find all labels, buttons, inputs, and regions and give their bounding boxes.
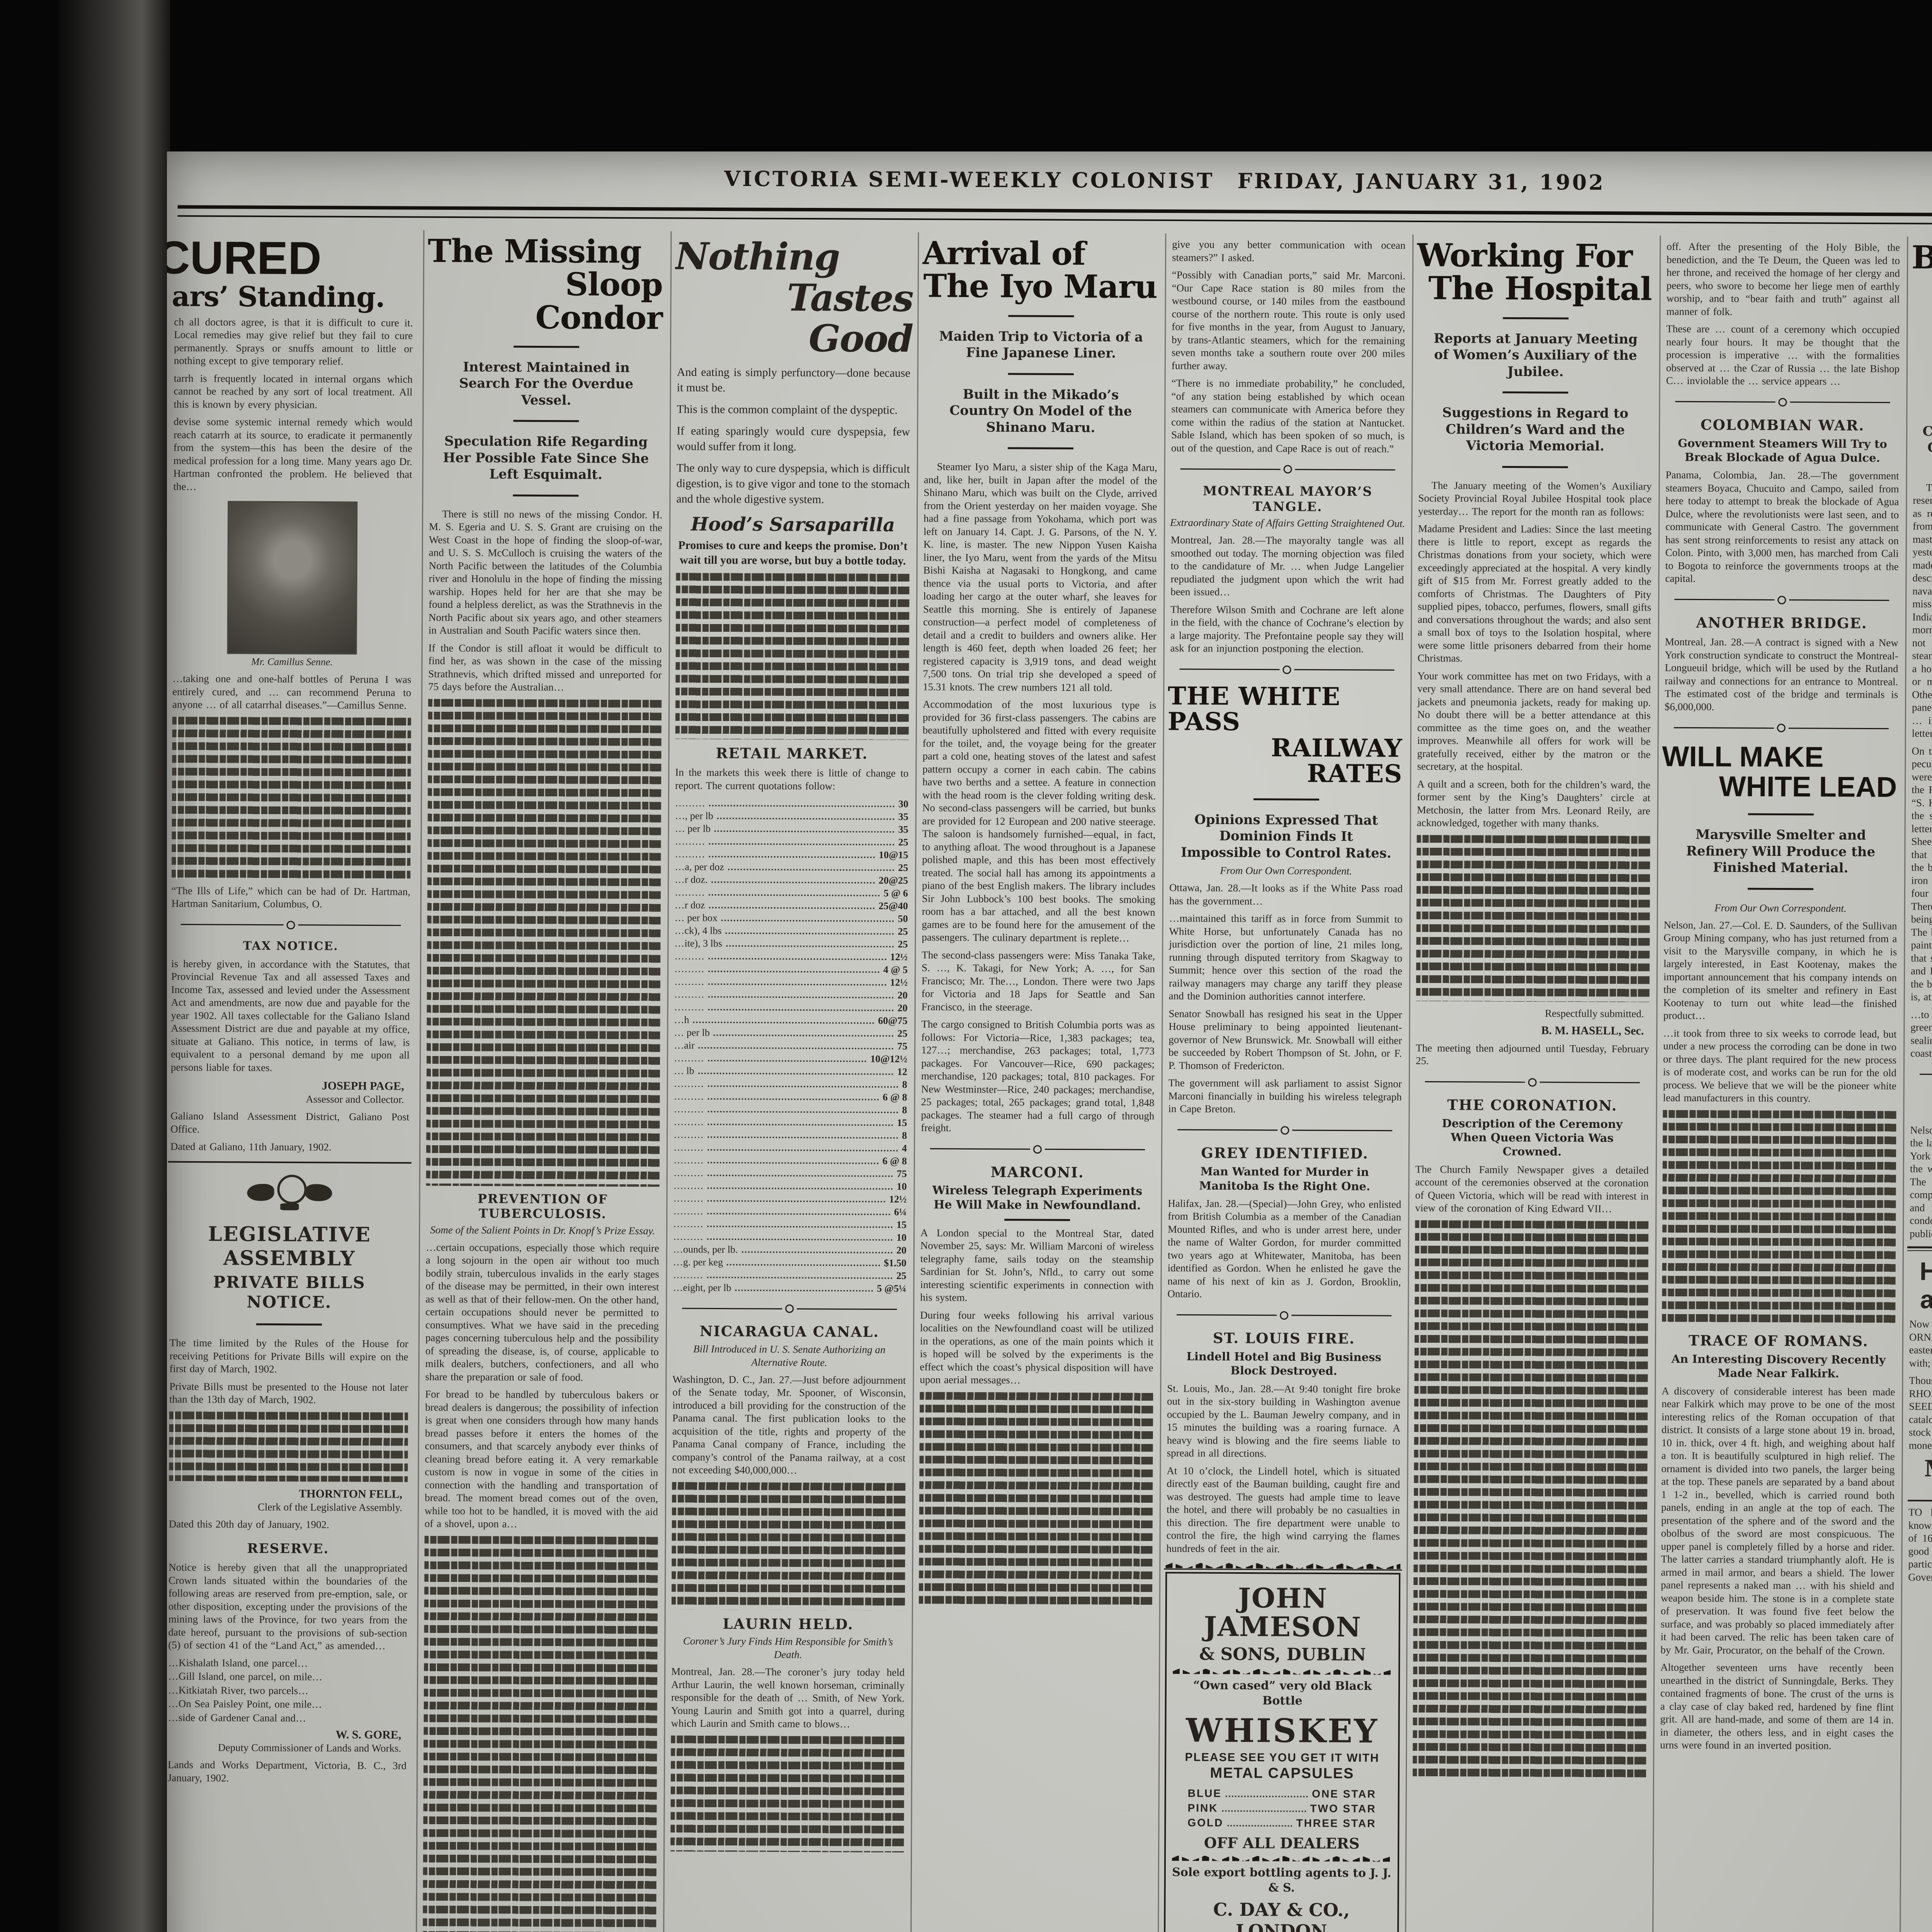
section-divider (1177, 1311, 1391, 1320)
market-price-row: … lb12 (674, 1065, 907, 1078)
article-paragraph: Ottawa, Jan. 28.—It looks as if the Whit… (1169, 881, 1403, 908)
portrait-photo (227, 501, 358, 655)
colombian-war-heading: COLOMBIAN WAR. (1663, 416, 1901, 434)
article-paragraph: “Possibly with Canadian ports,” said Mr.… (1172, 269, 1405, 373)
grey-subhead: Man Wanted for Murder in Manitoba Is the… (1177, 1164, 1392, 1193)
article-paragraph: Your work committee has met on two Frida… (1417, 669, 1651, 774)
notice-fragment: …On Sea Paisley Point, one mile… (168, 1697, 407, 1711)
grey-heading: GREY IDENTIFIED. (1166, 1144, 1404, 1162)
market-price-row: ………8 (673, 1128, 907, 1142)
market-price-row: ………25 (673, 1269, 906, 1282)
article-paragraph: “There is no immediate probability,” he … (1171, 377, 1405, 456)
notice-paragraph: is hereby given, in accordance with the … (171, 957, 410, 1075)
newspaper-page: VICTORIA SEMI-WEEKLY COLONISTFRIDAY, JAN… (167, 151, 1932, 1932)
market-price-row: … per box50 (675, 912, 908, 925)
notice-signature-role: Assessor and Collector. (168, 1092, 404, 1106)
jameson-star-row: PINKTWO STAR (1188, 1801, 1376, 1816)
body-text-texture (1413, 1220, 1648, 1782)
market-price-row: …ounds, per lb.20 (673, 1243, 906, 1257)
article-paragraph: give you any better communication with o… (1172, 238, 1405, 265)
article-paragraph: Halifax, Jan. 28.—(Special)—John Grey, w… (1167, 1197, 1401, 1302)
newspaper-scan: VICTORIA SEMI-WEEKLY COLONISTFRIDAY, JAN… (0, 0, 1932, 1932)
jameson-star-row: GOLDTHREE STAR (1187, 1815, 1376, 1831)
article-paragraph: On the stem was the broad arrow which is… (1911, 745, 1932, 1005)
column-4: Arrival ofThe Iyo Maru Maiden Trip to Vi… (912, 237, 1160, 1932)
section-divider (1177, 1126, 1392, 1135)
section-divider (682, 1304, 897, 1313)
body-text-texture (1416, 835, 1650, 1002)
montreal-tangle-subhead: Extraordinary State of Affairs Getting S… (1168, 516, 1406, 530)
article-paragraph: off. After the presenting of the Holy Bi… (1666, 240, 1900, 319)
masthead-rule-2 (178, 215, 1932, 225)
divider-rule (513, 494, 578, 497)
column-7: off. After the presenting of the Holy Bi… (1654, 240, 1902, 1932)
boat-condor-headline: Boat FromThe Condor (1912, 241, 1932, 308)
another-bridge-heading: ANOTHER BRIDGE. (1663, 614, 1901, 632)
marconi-heading: MARCONI. (918, 1163, 1156, 1181)
notice-paragraph: The time limited by the Rules of the Hou… (169, 1337, 408, 1376)
hoods-ad-headline: NothingTastes Good (675, 236, 913, 359)
retail-market-heading: RETAIL MARKET. (673, 744, 911, 762)
article-paragraph: Therefore Wilson Smith and Cochrane are … (1170, 603, 1404, 656)
condor-subhead-2: Speculation Rife Regarding Her Possible … (439, 433, 654, 483)
market-price-row: ………4 @ 5 (674, 963, 908, 976)
henry-headline: Henry’s Nurseries (1907, 1257, 1932, 1286)
market-intro: In the markets this week there is little… (675, 766, 908, 793)
book-gutter-edge (58, 0, 170, 1932)
jameson-star-list: BLUEONE STARPINKTWO STARGOLDTHREE STAR (1172, 1786, 1391, 1831)
colombian-war-subhead: Government Steamers Will Try to Break Bl… (1675, 436, 1890, 465)
column-3: NothingTastes Good And eating is simply … (665, 236, 913, 1932)
market-price-row: ………15 (673, 1218, 906, 1231)
jameson-dealers: OFF ALL DEALERS (1172, 1834, 1391, 1852)
market-price-row: ………6¼ (673, 1205, 906, 1219)
notice-fragment: …side of Gardener Canal and… (168, 1711, 407, 1725)
coat-of-arms-icon (247, 1170, 332, 1217)
market-price-row: ………12½ (673, 1192, 906, 1206)
notice-paragraph: Notice is hereby given that all the unap… (168, 1561, 407, 1653)
divider-rule (1748, 813, 1814, 816)
white-lead-subhead: Marysville Smelter and Refinery Will Pro… (1673, 827, 1888, 877)
henry-address: 3009 Westminster Road, Vancouver. B. C. (1908, 1482, 1932, 1503)
divider-rule (1748, 888, 1813, 890)
zigzag-border (1165, 1563, 1400, 1569)
tuberculosis-heading: PREVENTION OF TUBERCULOSIS. (423, 1191, 662, 1221)
article-paragraph: Madame President and Ladies: Since the l… (1418, 522, 1652, 666)
masthead-title: VICTORIA SEMI-WEEKLY COLONIST (724, 166, 1214, 193)
market-price-row: …eight, per lb5 @5¼ (673, 1281, 906, 1295)
market-price-row: ………10 (673, 1179, 907, 1193)
ad-paragraph: Thousands of BULBS, ROSES, RHODODENDRONS… (1909, 1374, 1932, 1453)
jameson-see-line: PLEASE SEE YOU GET IT WITH (1172, 1750, 1392, 1766)
article-paragraph: Panama, Colombia, Jan. 28.—The governmen… (1665, 469, 1899, 586)
romans-heading: TRACE OF ROMANS. (1660, 1332, 1898, 1350)
ad-paragraph: If eating sparingly would cure dyspepsia… (677, 423, 910, 455)
article-paragraph: At 10 o’clock, the Lindell hotel, which … (1166, 1464, 1400, 1556)
nicaragua-subhead: Bill Introduced in U. S. Senate Authoriz… (670, 1342, 908, 1369)
column-6: Working ForThe Hospital Reports at Janua… (1406, 239, 1655, 1932)
column-1: CURED ars’ Standing. ch all doctors agre… (167, 233, 415, 1932)
article-paragraph: During four weeks following his arrival … (920, 1309, 1153, 1388)
article-paragraph: …to show the identity of the vessel, whi… (1910, 1008, 1932, 1061)
hoods-product-name: Hood’s Sarsaparilla (674, 514, 912, 536)
section-divider (930, 1145, 1145, 1154)
notice-line: Galiano Island Assessment District, Gali… (170, 1110, 409, 1137)
market-price-row: ………75 (673, 1167, 907, 1180)
jameson-product: WHISKEY (1172, 1714, 1392, 1747)
notice-signature: THORNTON FELL, (167, 1486, 402, 1502)
article-paragraph: …certain occupations, especially those w… (425, 1241, 659, 1384)
divider-rule (1008, 373, 1074, 375)
market-price-row: ………8 (674, 1077, 907, 1091)
tax-notice-heading: TAX NOTICE. (169, 939, 412, 954)
ad-paragraph: This is the common complaint of the dysp… (677, 401, 910, 418)
romans-subhead: An Interesting Discovery Recently Made N… (1671, 1352, 1886, 1381)
ad-paragraph: And eating is simply perfunctory—done be… (677, 364, 910, 396)
divider-rule (1502, 466, 1568, 468)
montreal-tangle-heading: MONTREAL MAYOR’S TANGLE. (1168, 483, 1406, 515)
boat-subhead-1: One Found By Indians at Ahousett Identif… (1923, 332, 1932, 383)
ad-rule (1907, 1247, 1932, 1252)
article-paragraph: The boat found by the Indians at the Aho… (1912, 481, 1932, 741)
iyo-maru-headline: Arrival ofThe Iyo Maru (922, 237, 1161, 304)
tuberculosis-subhead: Some of the Salient Points in Dr. Knopf’… (423, 1223, 662, 1237)
market-price-row: ………5 @ 6 (675, 886, 908, 900)
st-louis-subhead: Lindell Hotel and Big Business Block Des… (1176, 1349, 1391, 1378)
correspondent-kicker: From Our Own Correspondent. (1167, 864, 1405, 878)
legislative-heading: LEGISLATIVE ASSEMBLY (168, 1222, 412, 1271)
henry-headline: and Greenhouses (1907, 1285, 1932, 1314)
body-text-texture (675, 573, 910, 740)
article-paragraph: For bread to be handled by tuberculous b… (425, 1388, 659, 1531)
notice-line: Dated at Galiano, 11th January, 1902. (170, 1140, 409, 1154)
divider-rule (1004, 1219, 1070, 1221)
market-price-row: …, per lb35 (675, 810, 908, 823)
article-paragraph: Nelson, Jan. 29.—(Special)—The funeral s… (1910, 1124, 1932, 1241)
peruna-ad-headline: CURED (167, 234, 415, 283)
market-price-row: …g. per keg$1.50 (673, 1256, 906, 1270)
market-price-row: …air75 (674, 1039, 907, 1053)
article-paragraph: Montreal, Jan. 28.—The coroner’s jury to… (671, 1665, 905, 1731)
iyo-subhead-1: Maiden Trip to Victoria of a Fine Japane… (934, 328, 1148, 362)
ad-paragraph: tarrh is frequently located in internal … (173, 372, 412, 412)
market-price-row: ………12½ (674, 975, 908, 989)
section-divider (1674, 723, 1889, 733)
hospital-subhead-2: Suggestions in Regard to Children’s Ward… (1428, 405, 1643, 455)
portrait-caption: Mr. Camillus Senne. (170, 655, 413, 669)
divider-rule (1008, 315, 1074, 317)
article-paragraph: Washington, D. C., Jan. 27.—Just before … (672, 1373, 906, 1478)
hospital-headline: Working ForThe Hospital (1417, 239, 1655, 306)
section-divider (181, 920, 401, 930)
divider-rule (1503, 317, 1568, 319)
article-paragraph: Senator Snowball has resigned his seat i… (1168, 1007, 1402, 1073)
report-submitted-line: Respectfully submitted. (1414, 1006, 1644, 1020)
henrys-nurseries-ad: Henry’s Nurseries and Greenhouses Now re… (1906, 1257, 1932, 1503)
article-paragraph: The second-class passengers were: Miss T… (922, 949, 1155, 1014)
body-text-texture (672, 1482, 905, 1611)
body-text-texture (670, 1735, 904, 1852)
body-text-texture (1662, 1110, 1896, 1327)
article-paragraph: The Church Family Newspaper gives a deta… (1415, 1163, 1649, 1216)
market-price-row: ………10@12½ (674, 1052, 907, 1066)
jameson-star-row: BLUEONE STAR (1188, 1786, 1376, 1801)
white-pass-headline: THE WHITE PASSRAILWAY RATES (1167, 684, 1406, 787)
divider-rule (256, 1323, 322, 1326)
market-price-row: …r doz25@40 (675, 899, 908, 913)
article-paragraph: …it took from three to six weeks to corr… (1663, 1027, 1897, 1105)
section-divider (1425, 1078, 1640, 1087)
notice-fragment: …Kitkiatah River, two parcels… (168, 1684, 407, 1697)
market-price-row: … per lb25 (674, 1026, 907, 1040)
market-price-list: ………30…, per lb35… per lb35………25………10@15…… (670, 797, 911, 1295)
section-divider (1675, 397, 1890, 406)
ad-paragraph: Now ready for planting out, 13 acres of … (1909, 1318, 1932, 1371)
market-price-row: …ite), 3 lbs25 (674, 937, 908, 951)
divider-rule (1008, 447, 1073, 449)
st-louis-heading: ST. LOUIS FIRE. (1165, 1329, 1403, 1347)
correspondent-kicker: From Our Own Correspondent. (1662, 901, 1900, 915)
jameson-sons: & SONS, DUBLIN (1173, 1644, 1392, 1665)
article-paragraph: Nelson, Jan. 27.—Col. E. D. Saunders, of… (1663, 918, 1897, 1023)
article-paragraph: Accommodation of the most luxurious type… (922, 698, 1156, 945)
article-paragraph: St. Louis, Mo., Jan. 28.—At 9:40 tonight… (1167, 1382, 1401, 1461)
article-paragraph: Steamer Iyo Maru, a sister ship of the K… (923, 460, 1157, 694)
notice-line: Lands and Works Department, Victoria, B.… (168, 1759, 406, 1786)
white-lead-headline: WILL MAKEWHITE LEAD (1662, 742, 1900, 803)
article-paragraph: The cargo consigned to British Columbia … (921, 1018, 1155, 1135)
article-paragraph: A discovery of considerable interest has… (1660, 1384, 1895, 1657)
article-paragraph: If the Condor is still afloat it would b… (428, 642, 662, 695)
notice-fragment: …Kishalath Island, one parcel… (168, 1656, 407, 1670)
article-paragraph: A quilt and a screen, both for the child… (1417, 777, 1651, 830)
zigzag-divider (1173, 1668, 1392, 1675)
notice-line: Dated this 20th day of January, 1902. (169, 1518, 408, 1532)
jameson-firm: C. DAY & CO., LONDON (1172, 1899, 1391, 1932)
market-price-row: …h60@75 (674, 1014, 907, 1027)
notice-fragment: …Gill Island, one parcel, on mile… (168, 1670, 407, 1684)
body-text-texture (422, 1536, 658, 1932)
market-price-row: ………4 (673, 1141, 907, 1155)
coronation-heading: THE CORONATION. (1413, 1096, 1651, 1114)
market-price-row: ………20 (674, 988, 908, 1002)
hospital-subhead-1: Reports at January Meeting of Women’s Au… (1428, 330, 1643, 381)
notice-paragraph: Private Bills must be presented to the H… (169, 1380, 408, 1407)
notice-signature: W. S. GORE, (167, 1727, 401, 1742)
section-divider (1180, 464, 1395, 474)
section-divider (1674, 595, 1889, 605)
column-2: The MissingSloop Condor Interest Maintai… (417, 235, 666, 1932)
market-price-row: …ck), 4 lbs25 (674, 924, 908, 938)
jameson-name: JOHN JAMESON (1173, 1583, 1393, 1641)
iyo-subhead-2: Built in the Mikado’s Country On Model o… (933, 386, 1148, 436)
masthead: VICTORIA SEMI-WEEKLY COLONISTFRIDAY, JAN… (172, 166, 1932, 195)
article-paragraph: The January meeting of the Women’s Auxil… (1418, 479, 1651, 519)
white-pass-subhead: Opinions Expressed That Dominion Finds I… (1179, 811, 1394, 862)
divider-rule (513, 420, 579, 422)
article-paragraph: These are … count of a ceremony which oc… (1666, 323, 1900, 388)
column-5: give you any better communication with o… (1159, 238, 1408, 1932)
ad-paragraph: “The Ills of Life,” which can be had of … (172, 884, 410, 912)
article-paragraph: Montreal, Jan. 28.—A contract is signed … (1665, 636, 1898, 714)
market-price-row: ………6 @ 8 (673, 1154, 907, 1168)
jameson-agents: Sole export bottling agents to J. J. & S… (1172, 1865, 1391, 1896)
notice-signature-role: Clerk of the Legislative Assembly. (167, 1500, 402, 1514)
private-bills-heading: PRIVATE BILLS NOTICE. (167, 1272, 411, 1313)
jameson-whiskey-ad: JOHN JAMESON & SONS, DUBLIN “Own cased” … (1164, 1563, 1401, 1932)
divider-rule (1503, 391, 1568, 394)
market-price-row: …a, per doz25 (675, 861, 908, 874)
divider-rule (1253, 798, 1319, 801)
to-let-classified: TO LET—That very desirable country resid… (1908, 1506, 1932, 1585)
ad-paragraph: ch all doctors agree, is that it is diff… (174, 316, 413, 369)
ad-paragraph: devise some systemic internal remedy whi… (173, 415, 412, 494)
divider-rule (514, 345, 579, 348)
notice-signature: JOSEPH PAGE, (168, 1078, 404, 1094)
market-price-row: ………20 (674, 1001, 908, 1015)
condor-subhead-1: Interest Maintained in Search For the Ov… (439, 359, 654, 409)
notice-signature-role: Deputy Commissioner of Lands and Works. (167, 1741, 401, 1755)
body-text-texture (172, 717, 411, 880)
article-paragraph: The meeting then adjourned until Tuesday… (1416, 1041, 1649, 1068)
laurin-subhead: Coroner’s Jury Finds Him Responsible for… (669, 1634, 907, 1662)
ad-paragraph: …taking one and one-half bottles of Peru… (172, 672, 411, 712)
hoods-slogan: Promises to cure and keeps the promise. … (678, 538, 908, 569)
ad-paragraph: The only way to cure dyspepsia, which is… (676, 460, 910, 508)
jameson-cased: “Own cased” very old Black Bottle (1173, 1678, 1392, 1709)
market-price-row: … per lb35 (675, 822, 908, 836)
zigzag-divider (1172, 1855, 1391, 1862)
market-price-row: ………10 (673, 1230, 906, 1244)
masthead-date: FRIDAY, JANUARY 31, 1902 (1237, 168, 1605, 195)
market-price-row: ………25 (675, 835, 908, 849)
coronation-subhead: Description of the Ceremony When Queen V… (1425, 1116, 1639, 1159)
market-price-row: ………15 (673, 1116, 907, 1129)
body-text-texture (426, 699, 662, 1187)
laurin-heading: LAURIN HELD. (669, 1615, 907, 1633)
condor-headline: The MissingSloop Condor (427, 235, 666, 335)
reserve-heading: RESERVE. (167, 1541, 410, 1558)
article-paragraph: The government will ask parliament to as… (1168, 1077, 1401, 1116)
body-text-texture (169, 1412, 408, 1482)
market-price-row: ………6 @ 8 (674, 1090, 907, 1104)
henry-name: M. J. HENRY (1906, 1457, 1932, 1482)
market-price-row: …r doz.20@25 (675, 873, 908, 887)
jameson-capsules-line: METAL CAPSULES (1172, 1765, 1392, 1781)
body-text-texture (919, 1392, 1153, 1609)
market-price-row: ………10@15 (675, 848, 908, 862)
article-paragraph: A London special to the Montreal Star, d… (920, 1226, 1154, 1305)
article-paragraph: …maintained this tariff as in force from… (1169, 912, 1403, 1003)
report-signature: B. M. HASELL, Sec. (1413, 1023, 1644, 1038)
section-divider (1920, 1070, 1932, 1079)
nicaragua-heading: NICARAGUA CANAL. (670, 1323, 908, 1341)
robertson-heading: MR. ROBERTSON’S FUNERAL. (1908, 1088, 1932, 1120)
boat-subhead-2: Gold Watch and Chronometer Drift Ashore … (1922, 407, 1932, 457)
section-divider (1179, 665, 1394, 674)
article-paragraph: There is still no news of the missing Co… (429, 508, 662, 638)
market-price-row: ………12½ (674, 950, 908, 964)
market-price-row: ………8 (673, 1103, 907, 1117)
article-paragraph: Montreal, Jan. 28.—The mayoralty tangle … (1170, 534, 1404, 599)
marconi-subhead: Wireless Telegraph Experiments He Will M… (930, 1183, 1145, 1213)
peruna-ad-subheadline: ars’ Standing. (172, 282, 415, 312)
masthead-rule (178, 205, 1932, 217)
market-price-row: ………30 (675, 797, 908, 811)
article-paragraph: Altogether seventeen urns have recently … (1660, 1661, 1894, 1753)
